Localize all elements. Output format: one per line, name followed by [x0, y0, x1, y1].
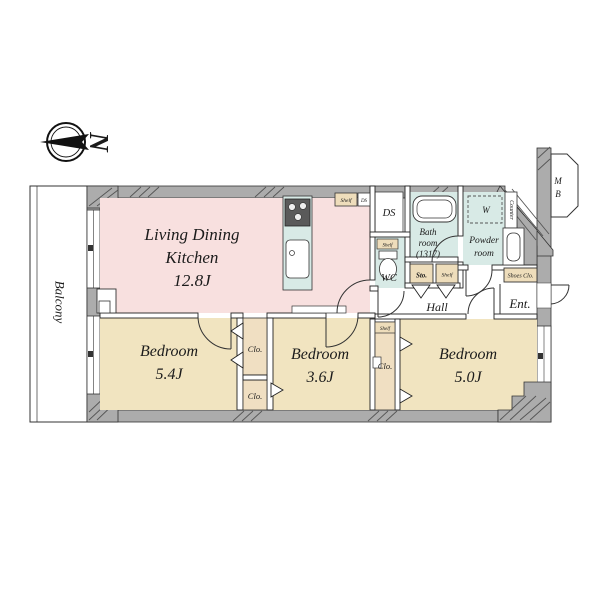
balcony: Balcony	[30, 186, 87, 422]
bottom-wall	[87, 410, 510, 422]
counter-label: Counter	[508, 200, 514, 220]
closet-upper-label: Clo.	[248, 344, 262, 354]
wall-wc-bottom	[370, 286, 378, 291]
wall-hall-bottom-right	[494, 314, 537, 319]
bedroom50-label: Bedroom	[439, 346, 497, 363]
bedroom54-label: Bedroom	[140, 343, 198, 360]
meter-box-label-m: M	[553, 176, 562, 186]
bath-fixtures	[413, 196, 456, 222]
pillar-notch	[97, 289, 116, 313]
floor-plan: N Balcony M B	[0, 0, 600, 600]
bath-label-line2: room	[419, 238, 438, 248]
wall-closet2-right	[395, 319, 400, 410]
bedroom54-size: 5.4J	[155, 366, 183, 383]
wall-ds-bottom	[370, 232, 410, 237]
floor-plan-page: N Balcony M B	[0, 0, 600, 600]
wall-bath-powder-upper	[458, 186, 463, 236]
powder-label-line1: Powder	[468, 236, 499, 246]
bath-label-line1: Bath	[420, 227, 437, 237]
kitchen-shelf-label: Shelf	[341, 197, 353, 204]
shoes-closet-label: Shoes Clo.	[508, 274, 534, 280]
stove-burner-1	[289, 204, 296, 211]
ldk-shelf-duct: Shelf DS	[335, 193, 370, 206]
toilet-tank-icon	[379, 251, 397, 259]
wall-ldk-bottom-1	[100, 313, 198, 318]
stove-icon	[285, 199, 310, 226]
bedroom36-label: Bedroom	[291, 346, 349, 363]
bedroom36-size: 3.6J	[305, 369, 334, 386]
pillar-notch-inner	[99, 301, 110, 313]
ldk-label-size: 12.8J	[173, 271, 212, 290]
compass-north-letter: N	[84, 131, 114, 153]
window-bedroom54-lock	[88, 351, 93, 357]
room-bedroom-54	[100, 318, 237, 410]
meter-box-bay: M B	[551, 154, 578, 217]
entrance-opening	[537, 283, 551, 308]
meter-box-label-b: B	[555, 189, 561, 199]
wall-powder-bottom-left	[458, 265, 468, 270]
wc-shelf-label: Shelf	[383, 244, 394, 249]
stove-burner-3	[295, 214, 302, 221]
storage-label: Sto.	[416, 272, 427, 280]
closet-b3-label: Clo.	[378, 361, 392, 371]
closet-lower-label: Clo.	[248, 391, 262, 401]
entrance-label: Ent.	[508, 296, 530, 311]
hall-label: Hall	[425, 300, 448, 314]
wall-ldk-bottom-2	[231, 313, 243, 318]
wall-closet1-divider	[243, 375, 267, 380]
balcony-label: Balcony	[53, 281, 68, 324]
wc-label: WC	[381, 273, 398, 284]
ldk-label-line2: Kitchen	[165, 248, 219, 267]
powder-label-line2: room	[474, 249, 494, 259]
wall-ldk-bottom-4	[358, 313, 375, 318]
room-bedroom-36	[271, 318, 370, 410]
kitchen-unit	[283, 196, 312, 290]
window-ldk-lock	[88, 245, 93, 251]
ldk-label-line1: Living Dining	[144, 225, 240, 244]
bedroom50-size: 5.0J	[454, 369, 482, 386]
kitchen-sink-icon	[286, 240, 309, 278]
window-bedroom50-lock	[538, 353, 543, 359]
hall-shelf-label: Shelf	[442, 272, 454, 279]
stove-burner-2	[300, 203, 307, 210]
ds-duct-label: DS	[360, 199, 368, 204]
wall-ldk-bottom-3	[267, 313, 326, 318]
ds-label: DS	[382, 208, 397, 219]
closet-b3-shelf-label: Shelf	[380, 327, 391, 332]
bath-label-line3: (1317)	[416, 249, 440, 259]
room-ldk	[100, 198, 370, 313]
vanity-unit	[503, 228, 524, 265]
